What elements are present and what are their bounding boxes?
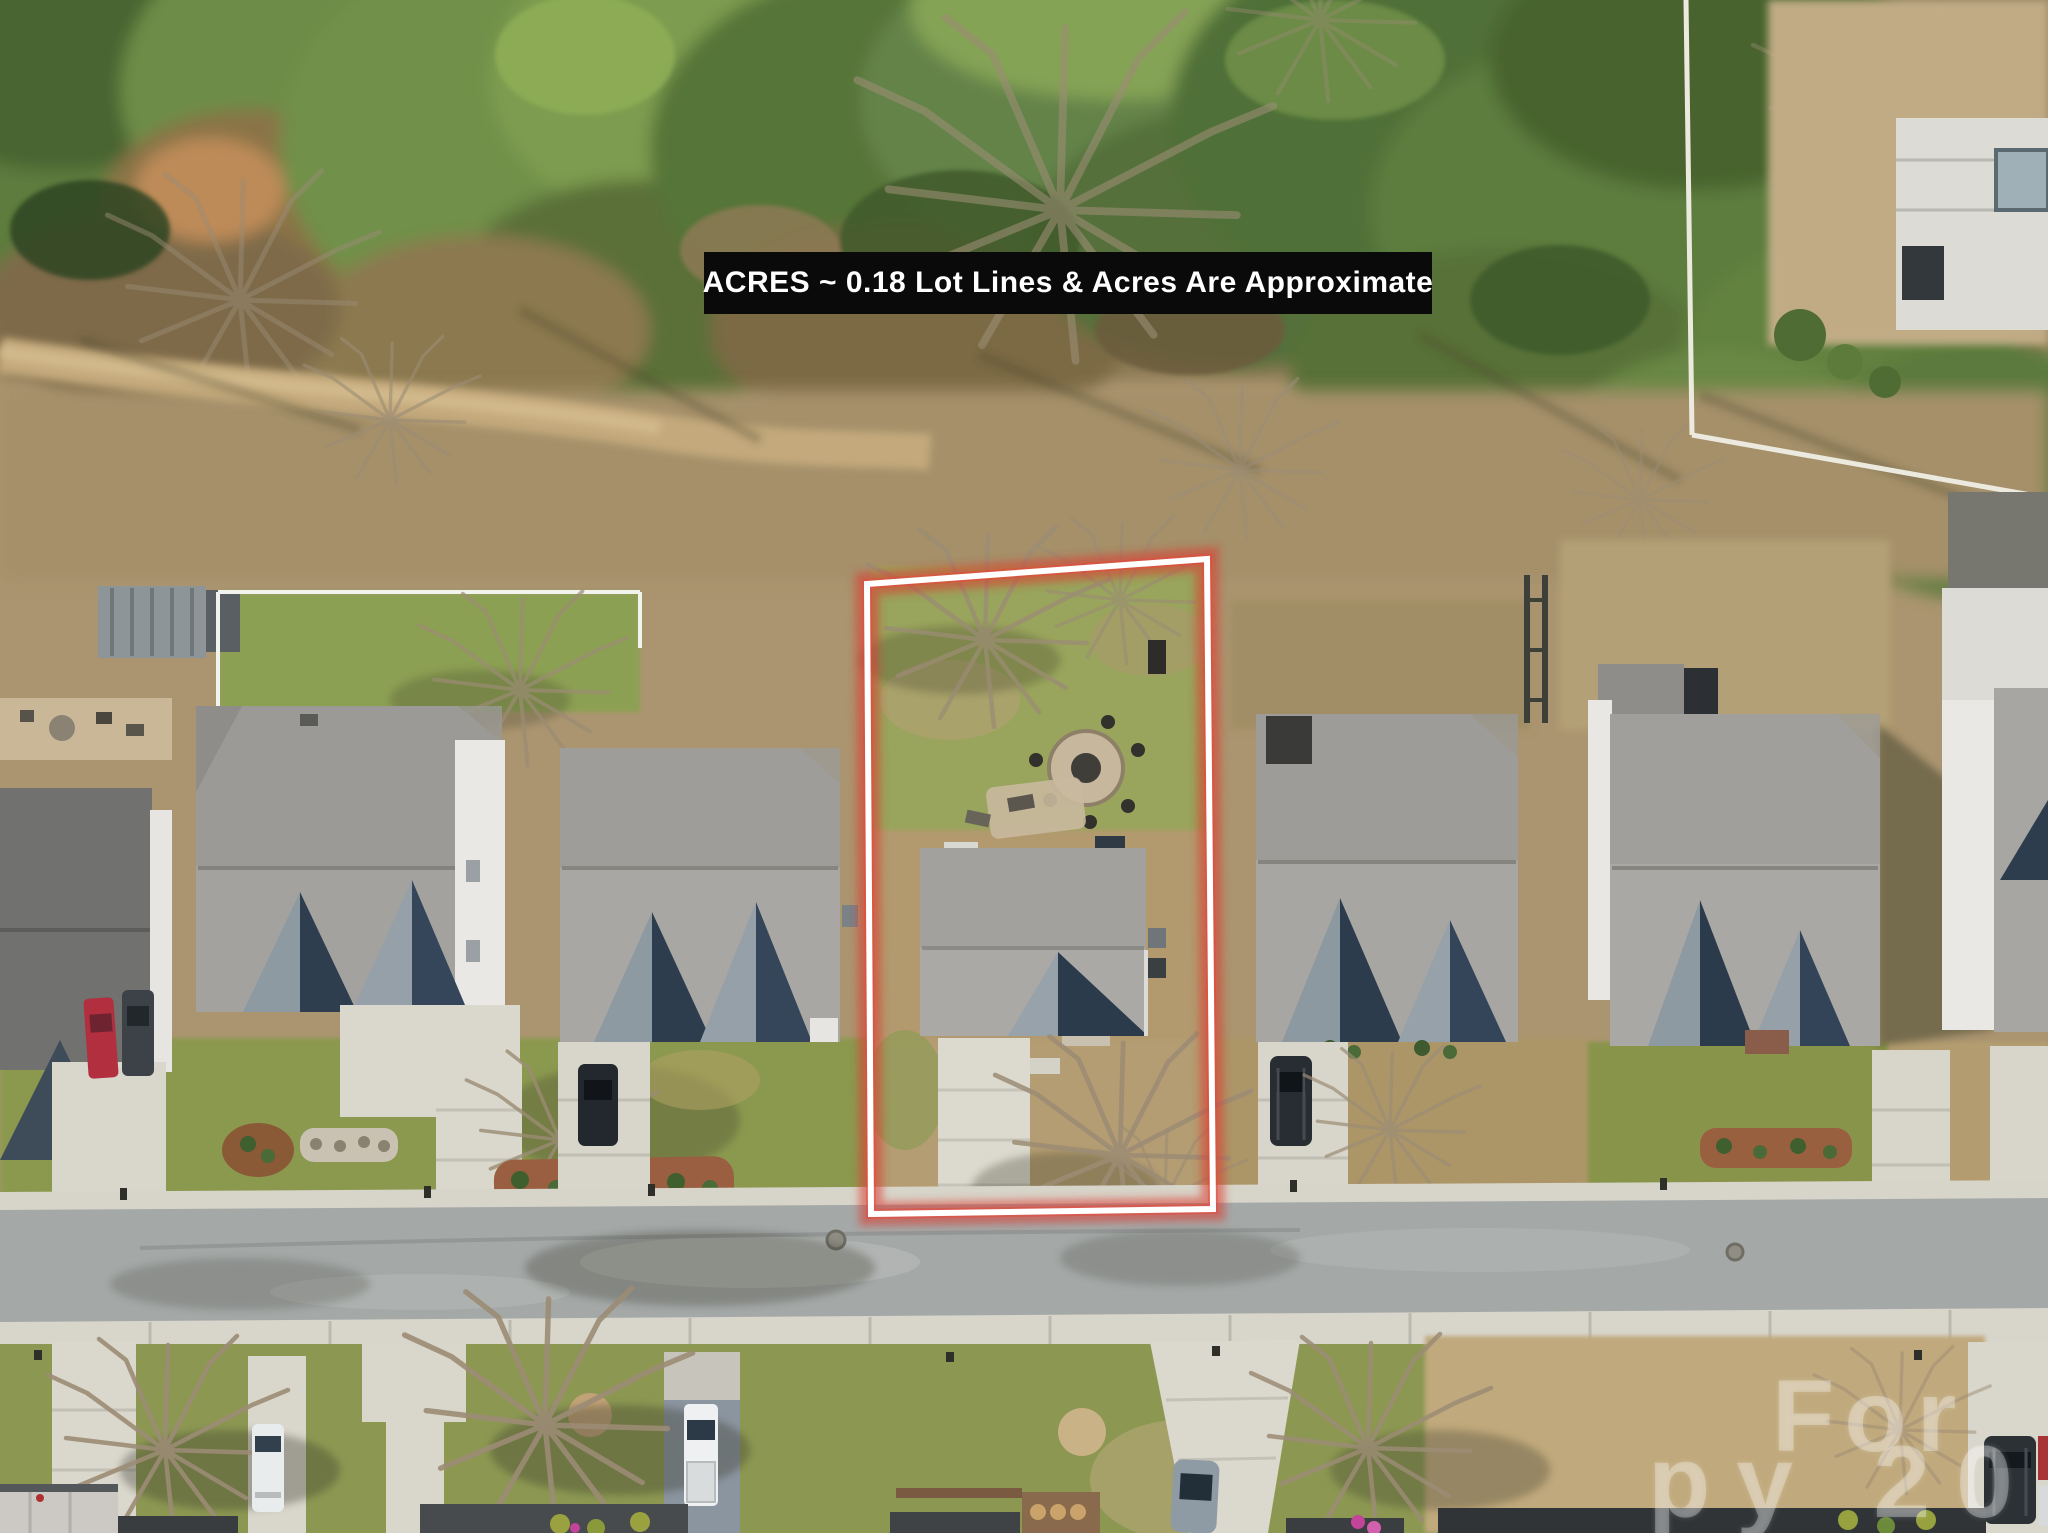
ac-unit (1148, 928, 1166, 948)
bottom-roof-long (1438, 1508, 1986, 1533)
dark-suv-house3 (1270, 1056, 1312, 1146)
porch (1745, 1030, 1789, 1054)
dark-suv-bottom-right (1984, 1436, 2036, 1524)
roof-section-dark (1266, 716, 1312, 764)
aerial-photo: ACRES ~ 0.18 Lot Lines & Acres Are Appro… (0, 0, 2048, 1533)
red-car-edge (2038, 1436, 2048, 1480)
acreage-banner-text: ACRES ~ 0.18 Lot Lines & Acres Are Appro… (703, 266, 1434, 300)
small-shed (206, 590, 240, 652)
yard-item (1148, 640, 1166, 674)
bottom-roof (890, 1512, 1020, 1533)
house-far-left (0, 788, 172, 1215)
mulch-circle (222, 1123, 294, 1177)
roof-section (1948, 492, 2048, 588)
acreage-banner: ACRES ~ 0.18 Lot Lines & Acres Are Appro… (704, 252, 1432, 314)
house-roof (920, 848, 1146, 948)
hot-tub (1996, 150, 2048, 210)
pink-flowers (570, 1523, 580, 1533)
house-wall (1942, 700, 1996, 1030)
dark-car-left (122, 990, 154, 1076)
porch-step (1062, 1036, 1110, 1046)
flag (36, 1494, 44, 1502)
front-walk (1030, 1058, 1060, 1074)
chimney (300, 714, 318, 726)
bottom-roof (1286, 1518, 1404, 1533)
dark-car-house2 (578, 1064, 618, 1146)
manhole (1727, 1244, 1743, 1260)
bottom-roof (118, 1516, 238, 1533)
ac-unit (842, 905, 858, 927)
house-wall (1588, 700, 1612, 1000)
stone-patio (0, 698, 172, 760)
grill (1902, 246, 1944, 300)
red-car (83, 997, 119, 1079)
tree-shadow-on-road (525, 1230, 875, 1306)
bottom-roof-white (0, 1492, 118, 1533)
scene-canvas (0, 0, 2048, 1533)
